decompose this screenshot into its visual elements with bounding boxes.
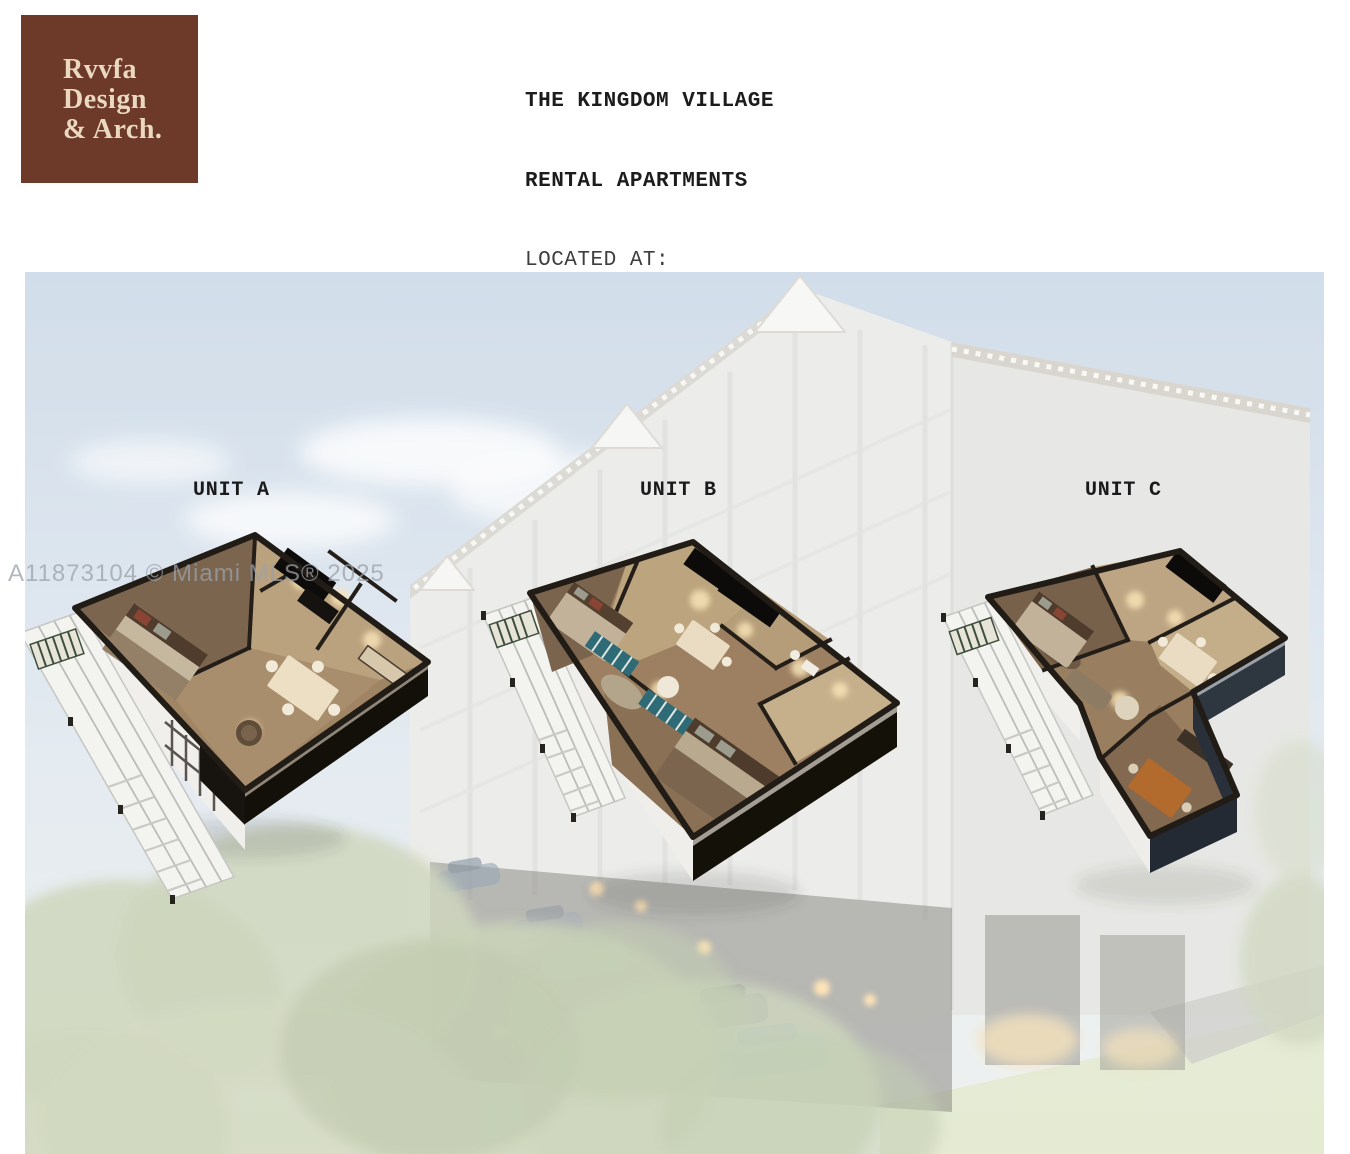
round-table <box>657 676 679 698</box>
unit-b-label: UNIT B <box>640 479 717 502</box>
mls-watermark: A11873104 © Miami MLS® 2025 <box>8 560 385 588</box>
flyer-page: Rvvfa Design & Arch. THE KINGDOM VILLAGE… <box>0 0 1350 1154</box>
ottoman <box>1115 696 1139 720</box>
unit-c-label: UNIT C <box>1085 479 1162 502</box>
unit-a-label: UNIT A <box>193 479 270 502</box>
